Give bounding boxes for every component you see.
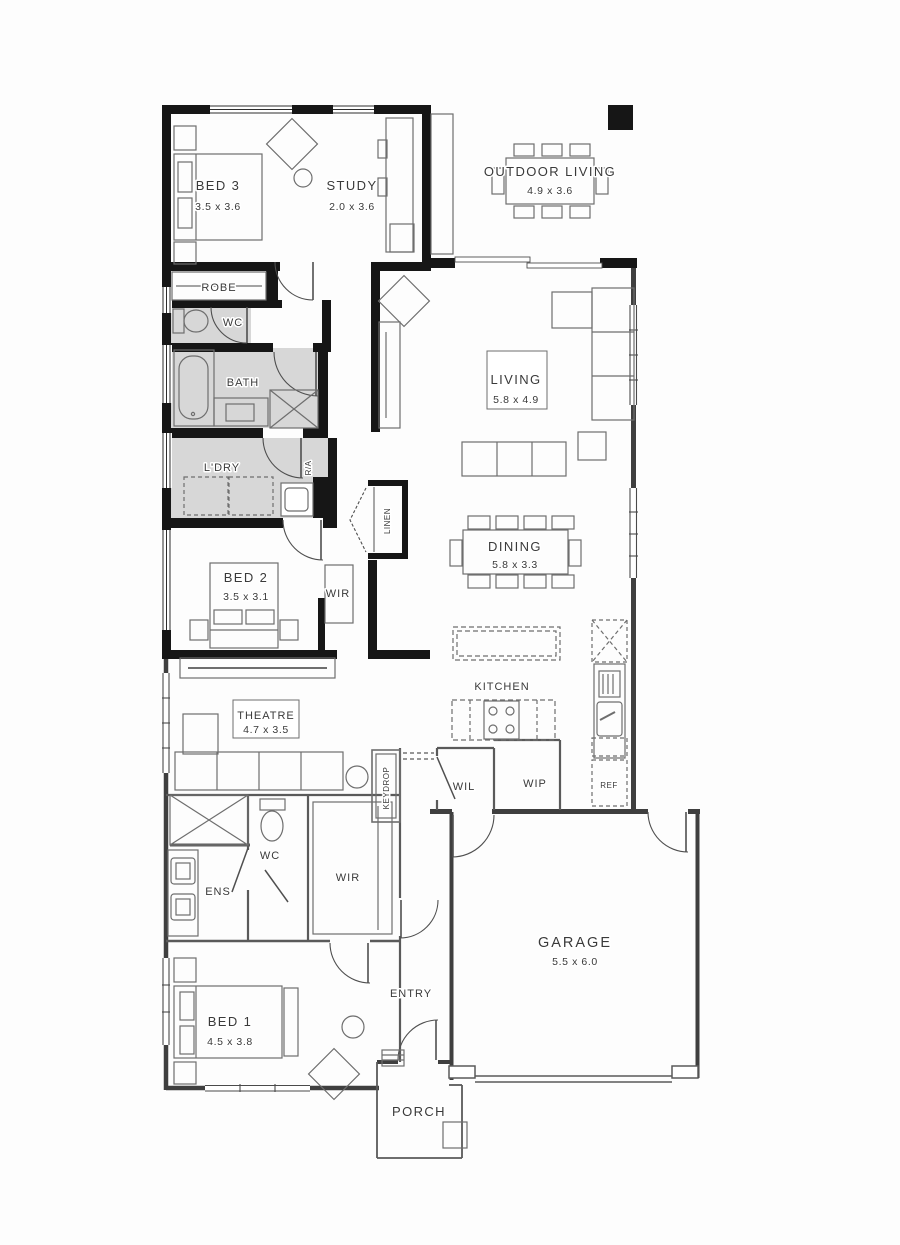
bed2-side-table bbox=[280, 620, 298, 640]
room-label-study: STUDY bbox=[326, 178, 377, 193]
study-furniture bbox=[378, 118, 414, 252]
room-dims-theatre: 4.7 x 3.5 bbox=[243, 724, 289, 736]
room-label-porch: PORCH bbox=[392, 1104, 446, 1119]
room-label-return-air: R/A bbox=[304, 460, 313, 475]
room-label-wc-ens: WC bbox=[260, 850, 280, 862]
duct-box bbox=[313, 477, 330, 518]
outdoor-bench bbox=[431, 114, 453, 254]
living-armchair bbox=[379, 276, 430, 327]
linen-bifold-door bbox=[350, 488, 366, 552]
room-label-wip: WIP bbox=[523, 778, 547, 790]
room-label-ref: REF bbox=[600, 781, 618, 790]
bed2-side-table bbox=[190, 620, 208, 640]
room-dims-bed1: 4.5 x 3.8 bbox=[207, 1036, 253, 1048]
floor-plan-canvas: BED 3 3.5 x 3.6 STUDY 2.0 x 3.6 OUTDOOR … bbox=[0, 0, 900, 1245]
bed1-bench bbox=[284, 988, 298, 1056]
room-label-bed1: BED 1 bbox=[208, 1014, 253, 1029]
living-tv-unit bbox=[379, 322, 400, 428]
bed3-side-table bbox=[174, 242, 196, 264]
bed1-chair bbox=[309, 1049, 360, 1100]
wir-bed1-door bbox=[400, 900, 438, 938]
ens-fixtures bbox=[168, 795, 248, 936]
room-dims-garage: 5.5 x 6.0 bbox=[552, 956, 598, 968]
garage-pier-right bbox=[672, 1066, 698, 1078]
bed1-side-table bbox=[174, 1062, 196, 1084]
bed3-side-table bbox=[174, 126, 196, 150]
room-label-kitchen: KITCHEN bbox=[474, 681, 529, 693]
bed3-bed bbox=[174, 154, 262, 240]
kitchen-island bbox=[453, 627, 560, 660]
wc-ens-door bbox=[265, 870, 288, 902]
garage-pier-left bbox=[449, 1066, 475, 1078]
bed1-furniture bbox=[174, 958, 364, 1099]
theatre-side-table bbox=[346, 766, 368, 788]
room-label-living: LIVING bbox=[490, 372, 541, 387]
cooktop bbox=[484, 701, 519, 739]
room-label-outdoor-living: OUTDOOR LIVING bbox=[484, 164, 616, 179]
room-label-theatre: THEATRE bbox=[237, 710, 295, 722]
room-label-entry: ENTRY bbox=[390, 988, 432, 1000]
living-sofa-chaise bbox=[552, 292, 592, 328]
room-label-bath: BATH bbox=[227, 377, 260, 389]
living-sofa2 bbox=[462, 442, 566, 476]
room-dims-study: 2.0 x 3.6 bbox=[329, 201, 375, 213]
sliding-door-panel bbox=[455, 257, 530, 262]
living-ottoman bbox=[578, 432, 606, 460]
room-label-keydrop: KEYDROP bbox=[382, 767, 391, 810]
room-label-wir-bed1: WIR bbox=[336, 872, 360, 884]
porch-pillar bbox=[443, 1122, 467, 1148]
bed1-door bbox=[330, 943, 370, 983]
outdoor-furniture bbox=[431, 114, 608, 254]
garage-internal-door bbox=[452, 815, 494, 857]
room-dims-dining: 5.8 x 3.3 bbox=[492, 559, 538, 571]
corner-pier bbox=[608, 105, 633, 130]
room-dims-living: 5.8 x 4.9 bbox=[493, 394, 539, 406]
room-label-wc-main: WC bbox=[223, 317, 243, 329]
room-label-linen: LINEN bbox=[383, 508, 392, 534]
room-label-bed3: BED 3 bbox=[196, 178, 241, 193]
bed2-door bbox=[283, 520, 323, 560]
theatre-sofa-return bbox=[183, 714, 218, 754]
sliding-door-panel bbox=[527, 263, 602, 268]
bed1-side-table bbox=[174, 958, 196, 982]
room-dims-bed3: 3.5 x 3.6 bbox=[195, 201, 241, 213]
room-label-ens: ENS bbox=[205, 886, 231, 898]
room-label-bed2: BED 2 bbox=[224, 570, 269, 585]
kitchen-bench bbox=[452, 700, 555, 740]
bed1-table bbox=[342, 1016, 364, 1038]
room-dims-outdoor-living: 4.9 x 3.6 bbox=[527, 185, 573, 197]
room-label-wil: WIL bbox=[453, 781, 476, 793]
bed2-furniture bbox=[190, 563, 353, 648]
bed3-chair bbox=[267, 119, 318, 170]
bed3-door bbox=[275, 262, 313, 300]
living-sofa bbox=[592, 288, 634, 420]
room-label-laundry: L'DRY bbox=[204, 462, 240, 474]
bed3-table bbox=[294, 169, 312, 187]
garage-rear-door bbox=[648, 812, 688, 852]
room-label-dining: DINING bbox=[488, 539, 542, 554]
floor-plan-drawing: BED 3 3.5 x 3.6 STUDY 2.0 x 3.6 OUTDOOR … bbox=[0, 0, 900, 1245]
ens-door bbox=[232, 848, 248, 892]
interior-walls bbox=[166, 740, 698, 1158]
room-label-garage: GARAGE bbox=[538, 935, 612, 951]
wc-ens-toilet bbox=[260, 799, 285, 841]
room-label-wir-bed2: WIR bbox=[326, 588, 350, 600]
room-dims-bed2: 3.5 x 3.1 bbox=[223, 591, 269, 603]
room-label-robe: ROBE bbox=[201, 282, 236, 294]
